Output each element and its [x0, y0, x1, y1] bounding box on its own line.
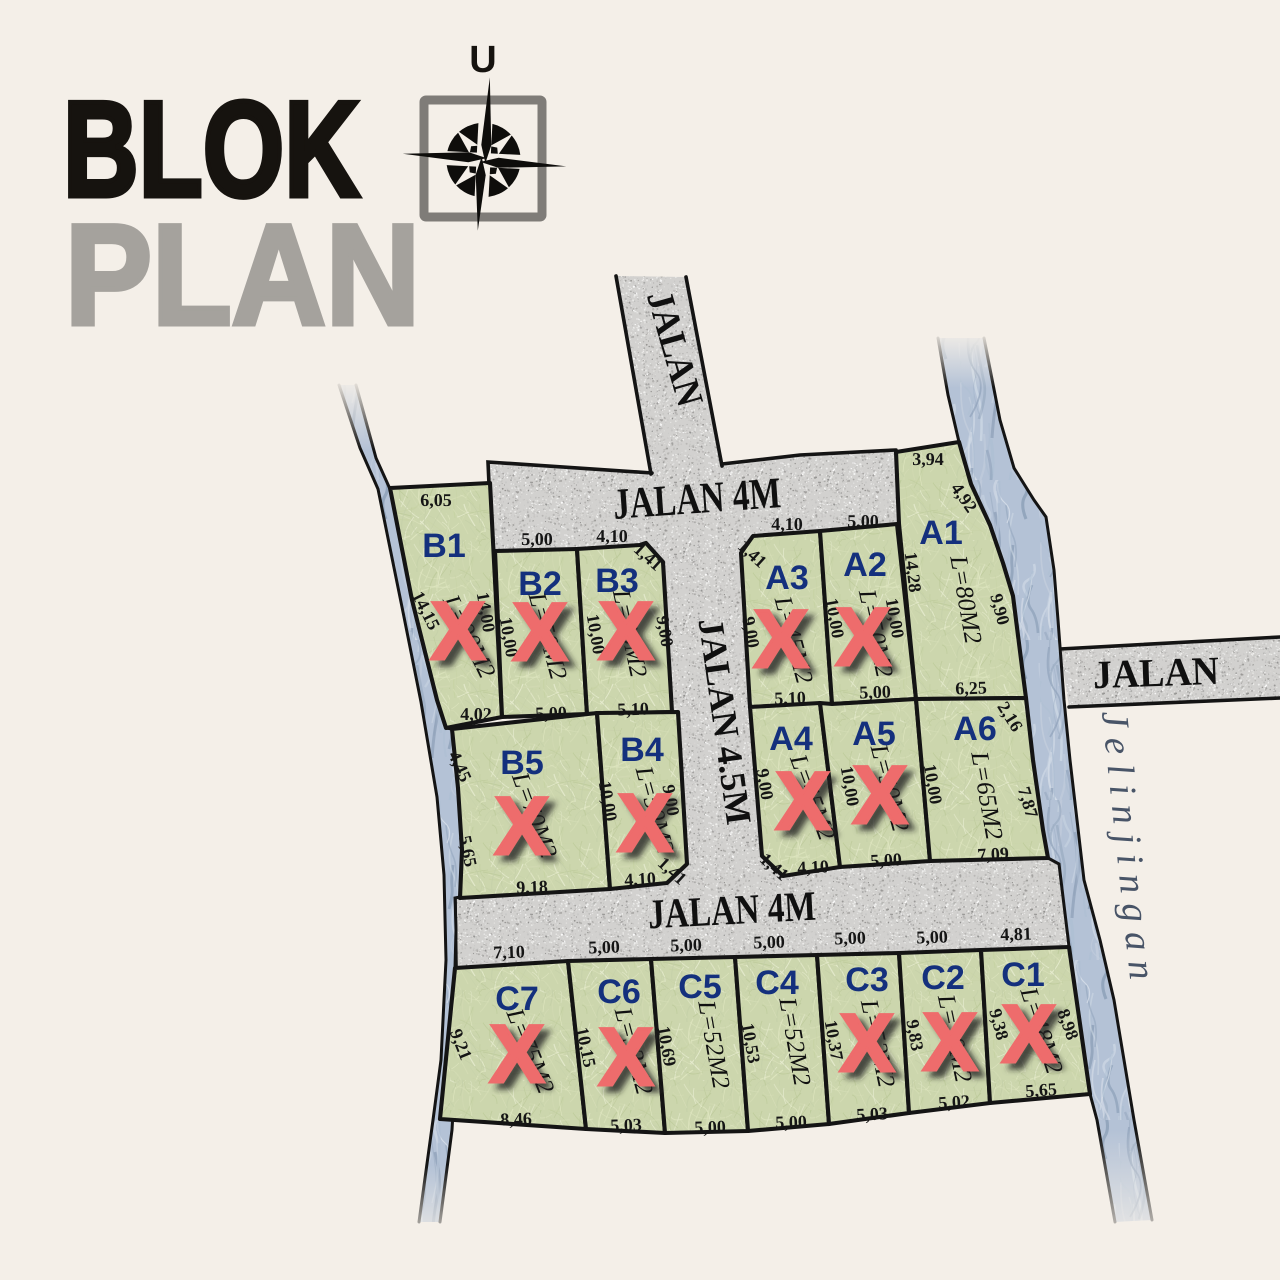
svg-text:PLAN: PLAN	[65, 196, 420, 355]
svg-text:X: X	[776, 756, 831, 847]
svg-text:X: X	[599, 1012, 654, 1103]
svg-text:5,00: 5,00	[521, 529, 553, 549]
svg-text:B4: B4	[620, 731, 664, 769]
svg-text:A1: A1	[919, 514, 962, 552]
svg-text:4,10: 4,10	[624, 868, 657, 890]
svg-text:5,00: 5,00	[694, 1116, 726, 1137]
svg-text:4,81: 4,81	[1000, 923, 1032, 944]
svg-text:5,00: 5,00	[870, 849, 903, 871]
svg-text:5,03: 5,03	[610, 1114, 642, 1135]
svg-text:5,00: 5,00	[859, 681, 891, 702]
svg-text:X: X	[618, 778, 673, 869]
svg-text:X: X	[513, 587, 568, 678]
svg-text:B1: B1	[422, 527, 465, 565]
svg-text:8,46: 8,46	[500, 1108, 532, 1129]
svg-text:5,02: 5,02	[938, 1091, 971, 1113]
svg-text:4,10: 4,10	[797, 856, 830, 878]
svg-text:X: X	[490, 1009, 545, 1100]
svg-text:5,00: 5,00	[834, 927, 866, 948]
svg-text:5,00: 5,00	[916, 926, 948, 947]
svg-text:X: X	[923, 997, 978, 1088]
svg-text:JALAN: JALAN	[1092, 648, 1220, 697]
svg-text:C3: C3	[845, 961, 888, 999]
svg-text:5,65: 5,65	[1025, 1079, 1058, 1101]
svg-text:7,10: 7,10	[493, 941, 525, 962]
svg-text:5,10: 5,10	[617, 698, 649, 719]
svg-text:X: X	[1002, 989, 1057, 1080]
svg-text:7,09: 7,09	[977, 843, 1010, 865]
svg-text:A2: A2	[843, 546, 886, 584]
svg-text:5,00: 5,00	[847, 511, 879, 531]
svg-text:9,18: 9,18	[516, 876, 548, 897]
svg-text:X: X	[431, 586, 486, 677]
svg-text:6,25: 6,25	[955, 677, 987, 698]
svg-text:4,02: 4,02	[460, 704, 492, 724]
svg-text:4,10: 4,10	[596, 526, 628, 546]
svg-text:U: U	[469, 39, 496, 81]
svg-text:X: X	[836, 592, 891, 683]
svg-text:5,00: 5,00	[588, 936, 620, 957]
svg-text:5,00: 5,00	[535, 702, 567, 723]
svg-text:X: X	[754, 594, 809, 685]
svg-text:5,00: 5,00	[670, 934, 702, 955]
svg-text:6,05: 6,05	[420, 490, 452, 510]
svg-text:X: X	[840, 998, 895, 1089]
svg-text:5,00: 5,00	[753, 931, 785, 952]
svg-text:A3: A3	[765, 559, 808, 597]
svg-text:5,00: 5,00	[775, 1111, 807, 1132]
svg-text:5,03: 5,03	[856, 1103, 889, 1125]
svg-text:X: X	[599, 586, 654, 677]
svg-text:X: X	[495, 781, 550, 872]
svg-text:JALAN 4M: JALAN 4M	[647, 884, 817, 939]
svg-text:5,10: 5,10	[774, 687, 806, 708]
svg-text:X: X	[853, 750, 908, 841]
svg-text:A6: A6	[953, 710, 996, 748]
svg-text:3,94: 3,94	[912, 449, 944, 469]
svg-text:4,10: 4,10	[771, 514, 803, 534]
